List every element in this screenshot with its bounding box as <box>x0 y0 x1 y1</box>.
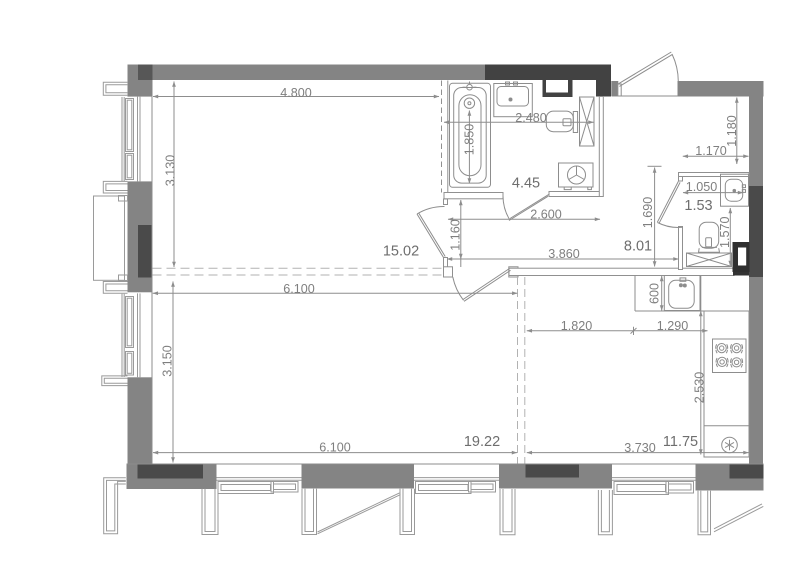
svg-text:1.53: 1.53 <box>684 198 712 214</box>
svg-text:6.100: 6.100 <box>319 440 351 454</box>
svg-text:6.100: 6.100 <box>283 282 315 296</box>
svg-text:1.290: 1.290 <box>657 319 689 333</box>
svg-text:2.600: 2.600 <box>530 207 562 221</box>
svg-text:2.480: 2.480 <box>515 111 547 125</box>
svg-text:3.150: 3.150 <box>161 345 175 377</box>
svg-text:15.02: 15.02 <box>383 244 419 260</box>
svg-text:4.45: 4.45 <box>512 176 540 192</box>
svg-text:1.570: 1.570 <box>718 217 732 249</box>
svg-text:3.130: 3.130 <box>163 155 177 187</box>
svg-text:1.160: 1.160 <box>449 219 463 251</box>
svg-text:3.730: 3.730 <box>624 441 656 455</box>
svg-text:2.530: 2.530 <box>692 372 706 404</box>
svg-text:11.75: 11.75 <box>663 434 698 450</box>
svg-text:1.170: 1.170 <box>695 144 727 158</box>
svg-text:1.820: 1.820 <box>561 319 593 333</box>
svg-text:1.050: 1.050 <box>686 180 718 194</box>
svg-text:4.800: 4.800 <box>280 86 312 100</box>
svg-text:19.22: 19.22 <box>464 434 500 450</box>
svg-text:3.860: 3.860 <box>548 247 580 261</box>
svg-text:1.690: 1.690 <box>641 197 655 229</box>
svg-text:1.180: 1.180 <box>725 115 739 147</box>
svg-text:8.01: 8.01 <box>624 239 652 255</box>
svg-text:600: 600 <box>648 283 662 304</box>
svg-text:1.850: 1.850 <box>463 124 477 156</box>
